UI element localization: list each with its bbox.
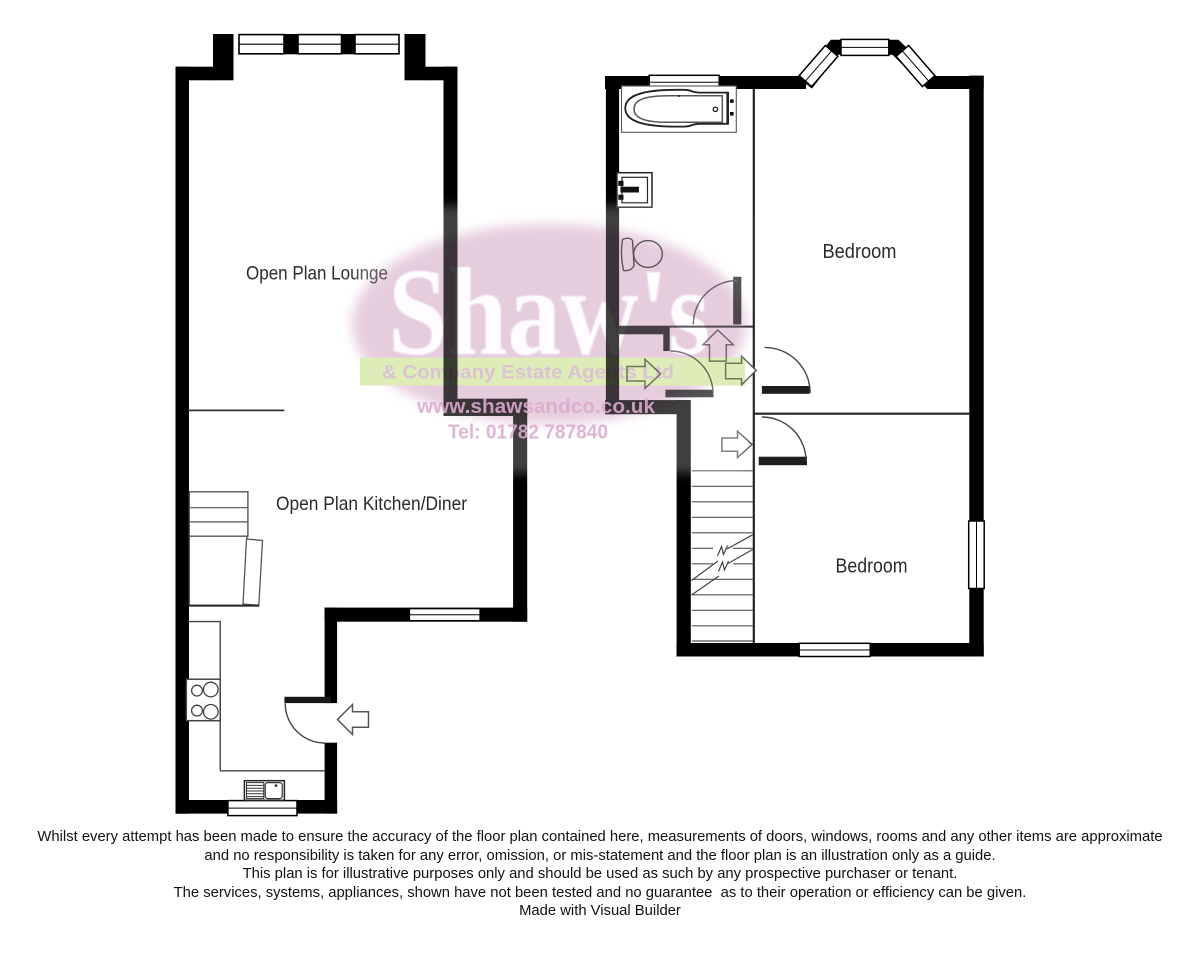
svg-text:www.shawsandco.co.uk: www.shawsandco.co.uk	[416, 396, 656, 418]
svg-text:Tel: 01782 787840: Tel: 01782 787840	[448, 422, 608, 444]
